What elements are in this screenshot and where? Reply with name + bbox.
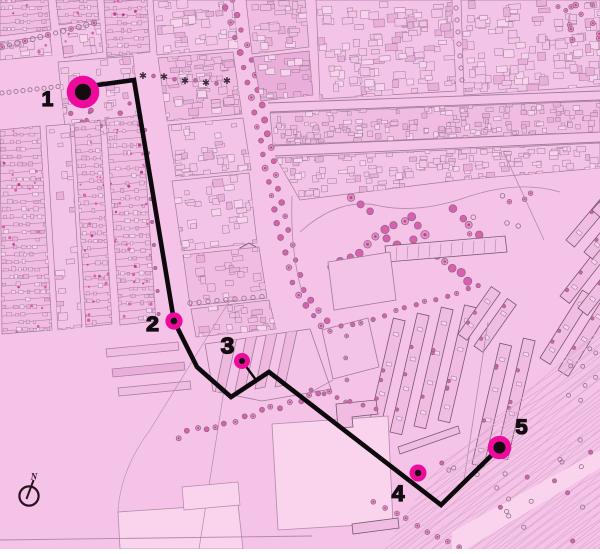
svg-text:3: 3	[221, 333, 235, 359]
svg-text:✱: ✱	[223, 76, 231, 87]
svg-text:2: 2	[146, 312, 159, 336]
svg-text:1: 1	[42, 88, 54, 111]
svg-text:4: 4	[392, 481, 405, 505]
svg-text:✱: ✱	[139, 71, 147, 82]
svg-text:✱: ✱	[181, 76, 189, 87]
svg-text:✱: ✱	[160, 72, 168, 83]
svg-text:5: 5	[515, 415, 527, 438]
svg-text:N: N	[30, 472, 38, 482]
svg-text:✱: ✱	[202, 78, 210, 89]
